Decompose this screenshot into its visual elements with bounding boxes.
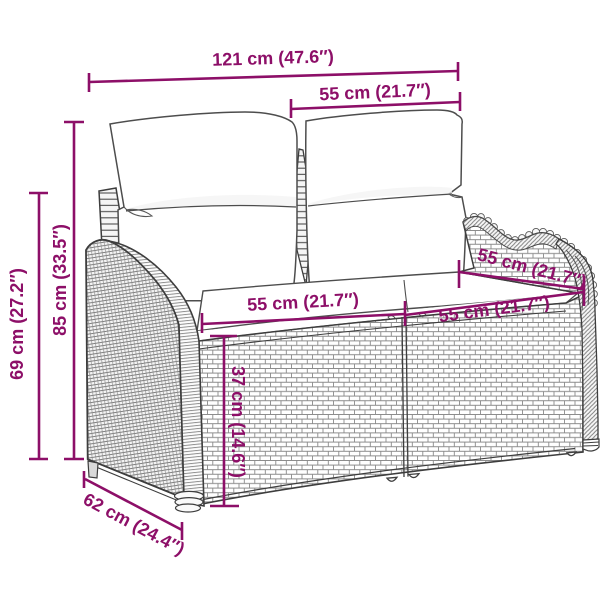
svg-text:121 cm (47.6″): 121 cm (47.6″) <box>212 46 334 70</box>
svg-text:69 cm (27.2″): 69 cm (27.2″) <box>7 268 27 380</box>
svg-text:85 cm (33.5″): 85 cm (33.5″) <box>50 224 70 336</box>
svg-text:37 cm (14.6″): 37 cm (14.6″) <box>228 366 248 478</box>
